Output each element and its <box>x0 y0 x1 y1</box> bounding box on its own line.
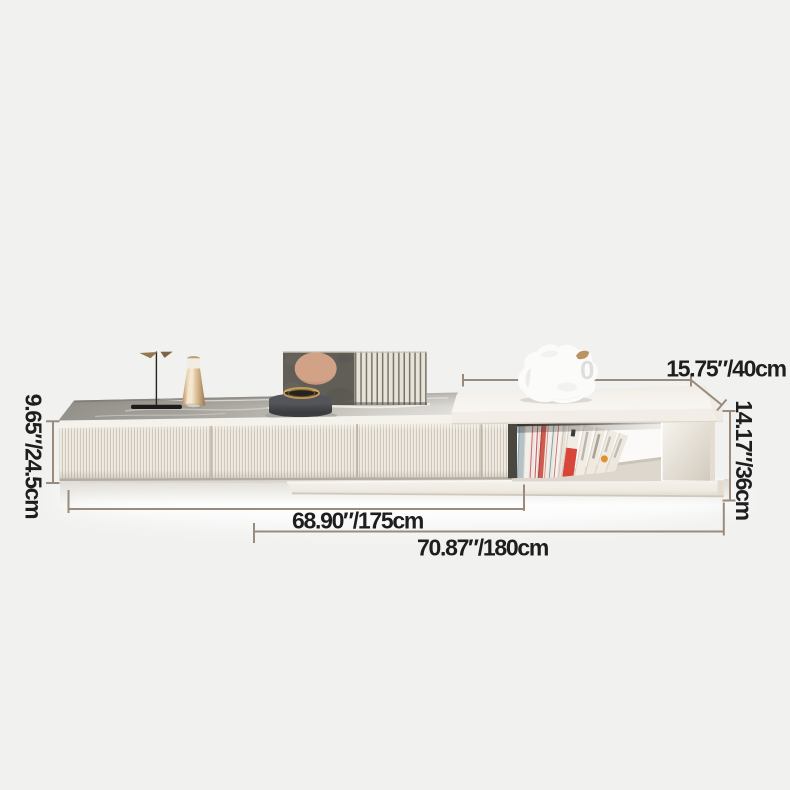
svg-text:0: 0 <box>580 355 594 385</box>
svg-text:9.65″/24.5cm: 9.65″/24.5cm <box>20 394 46 519</box>
svg-text:68.90″/175cm: 68.90″/175cm <box>292 508 424 534</box>
svg-text:14.17″/36cm: 14.17″/36cm <box>731 400 757 520</box>
svg-text:15.75″/40cm: 15.75″/40cm <box>666 356 786 382</box>
svg-text:70.87″/180cm: 70.87″/180cm <box>417 535 549 561</box>
